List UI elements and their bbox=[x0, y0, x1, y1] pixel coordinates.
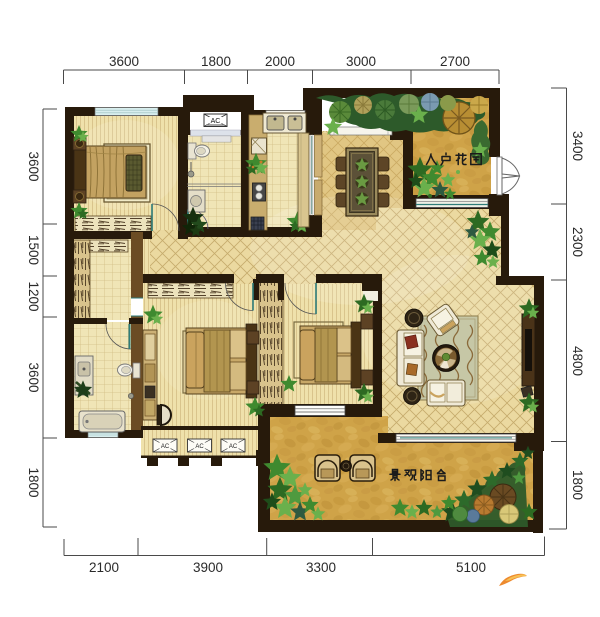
svg-text:AC: AC bbox=[195, 444, 204, 450]
svg-text:1800: 1800 bbox=[26, 467, 41, 497]
svg-text:1500: 1500 bbox=[26, 235, 41, 265]
svg-text:3000: 3000 bbox=[346, 54, 376, 69]
svg-text:1800: 1800 bbox=[201, 54, 231, 69]
svg-text:AC: AC bbox=[229, 444, 238, 450]
svg-text:3900: 3900 bbox=[193, 560, 223, 575]
svg-text:3400: 3400 bbox=[570, 131, 585, 161]
svg-text:2000: 2000 bbox=[265, 54, 295, 69]
svg-text:3600: 3600 bbox=[26, 362, 41, 392]
svg-text:AC: AC bbox=[161, 444, 170, 450]
svg-text:1200: 1200 bbox=[26, 281, 41, 311]
svg-text:1800: 1800 bbox=[570, 470, 585, 500]
svg-text:3600: 3600 bbox=[109, 54, 139, 69]
svg-text:5100: 5100 bbox=[456, 560, 486, 575]
svg-text:3600: 3600 bbox=[26, 151, 41, 181]
svg-text:2700: 2700 bbox=[440, 54, 470, 69]
svg-text:4800: 4800 bbox=[570, 346, 585, 376]
svg-text:3300: 3300 bbox=[306, 560, 336, 575]
svg-text:2100: 2100 bbox=[89, 560, 119, 575]
svg-text:AC: AC bbox=[211, 118, 221, 125]
svg-text:2300: 2300 bbox=[570, 227, 585, 257]
